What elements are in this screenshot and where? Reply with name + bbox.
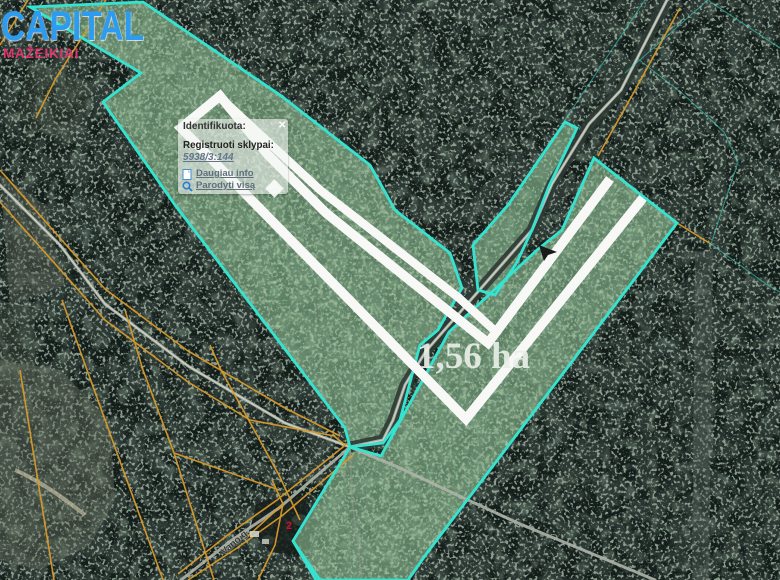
svg-text:1,56 ha: 1,56 ha <box>417 336 530 377</box>
